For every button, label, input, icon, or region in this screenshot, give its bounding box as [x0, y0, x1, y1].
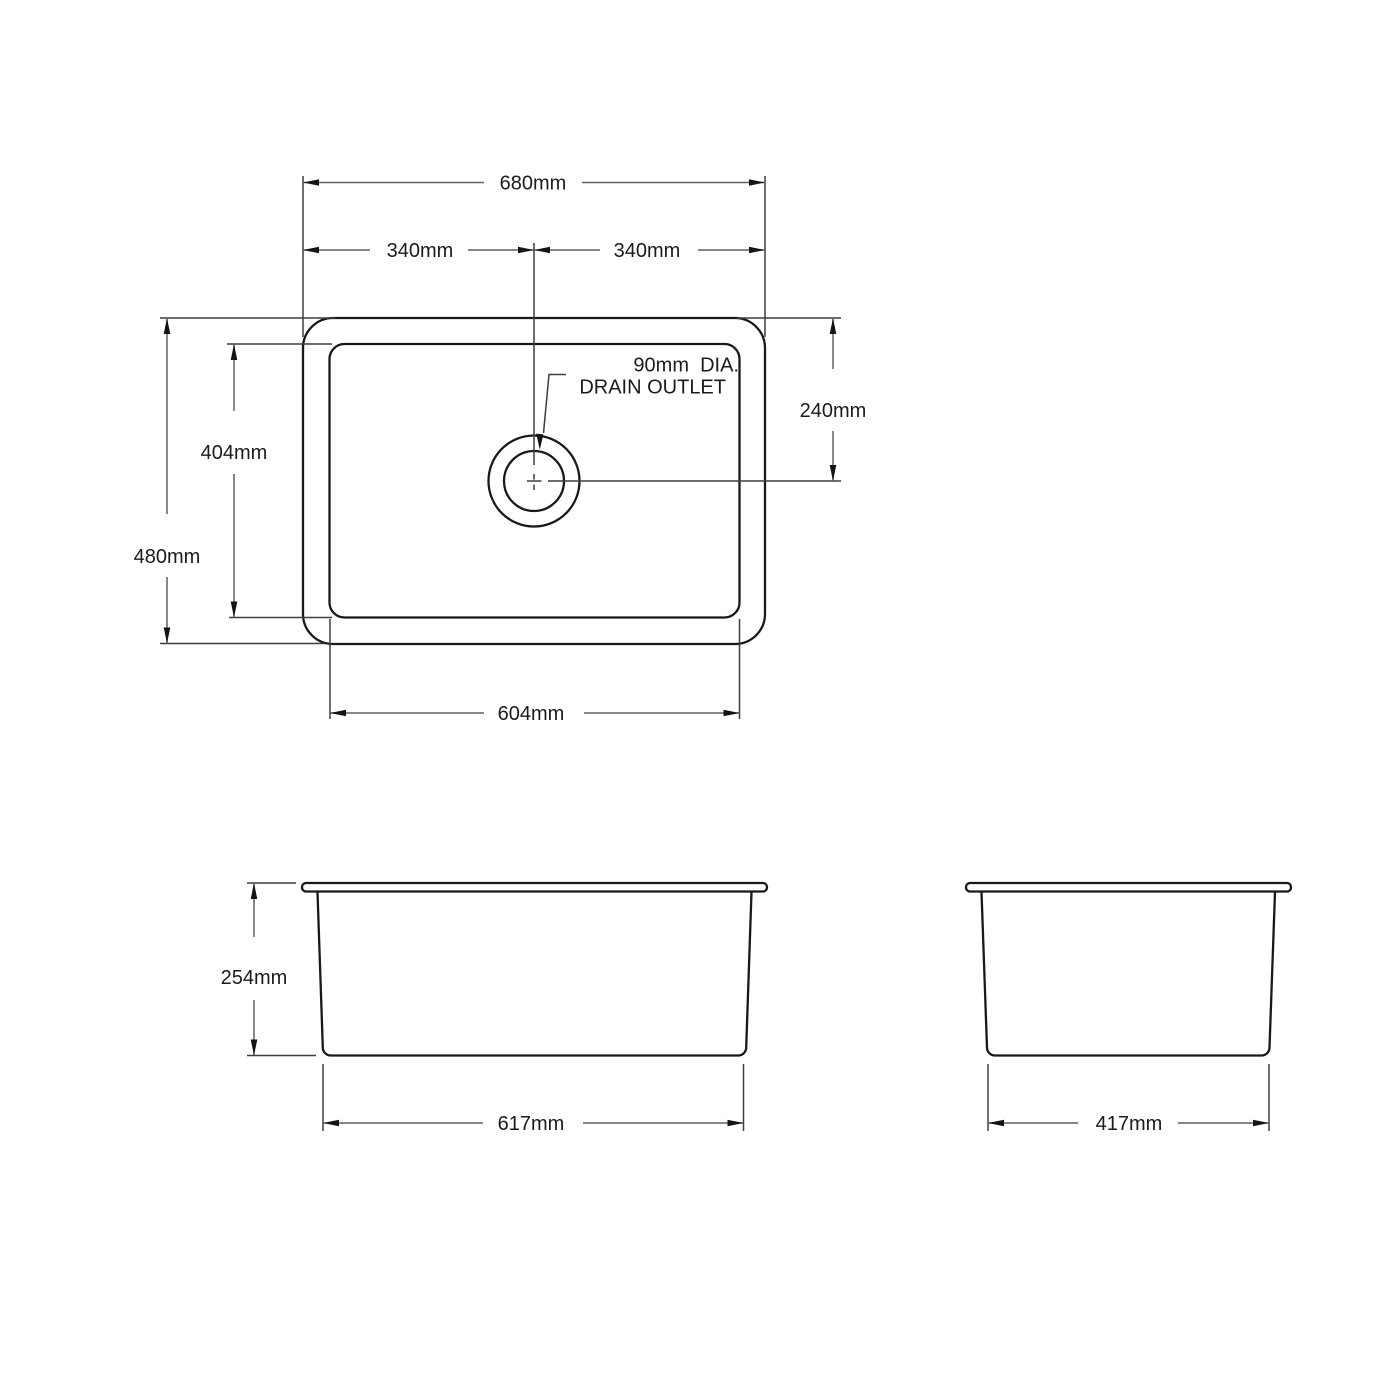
- svg-text:404mm: 404mm: [201, 442, 268, 464]
- svg-text:340mm: 340mm: [387, 240, 454, 262]
- svg-text:240mm: 240mm: [800, 400, 867, 422]
- svg-text:DRAIN OUTLET: DRAIN OUTLET: [579, 377, 726, 399]
- svg-text:480mm: 480mm: [134, 546, 201, 568]
- svg-text:417mm: 417mm: [1096, 1113, 1163, 1135]
- svg-text:254mm: 254mm: [221, 967, 288, 989]
- svg-text:617mm: 617mm: [498, 1113, 565, 1135]
- svg-text:604mm: 604mm: [498, 703, 565, 725]
- svg-text:680mm: 680mm: [500, 173, 567, 195]
- svg-text:340mm: 340mm: [614, 240, 681, 262]
- svg-text:90mm DIA.: 90mm DIA.: [633, 355, 739, 377]
